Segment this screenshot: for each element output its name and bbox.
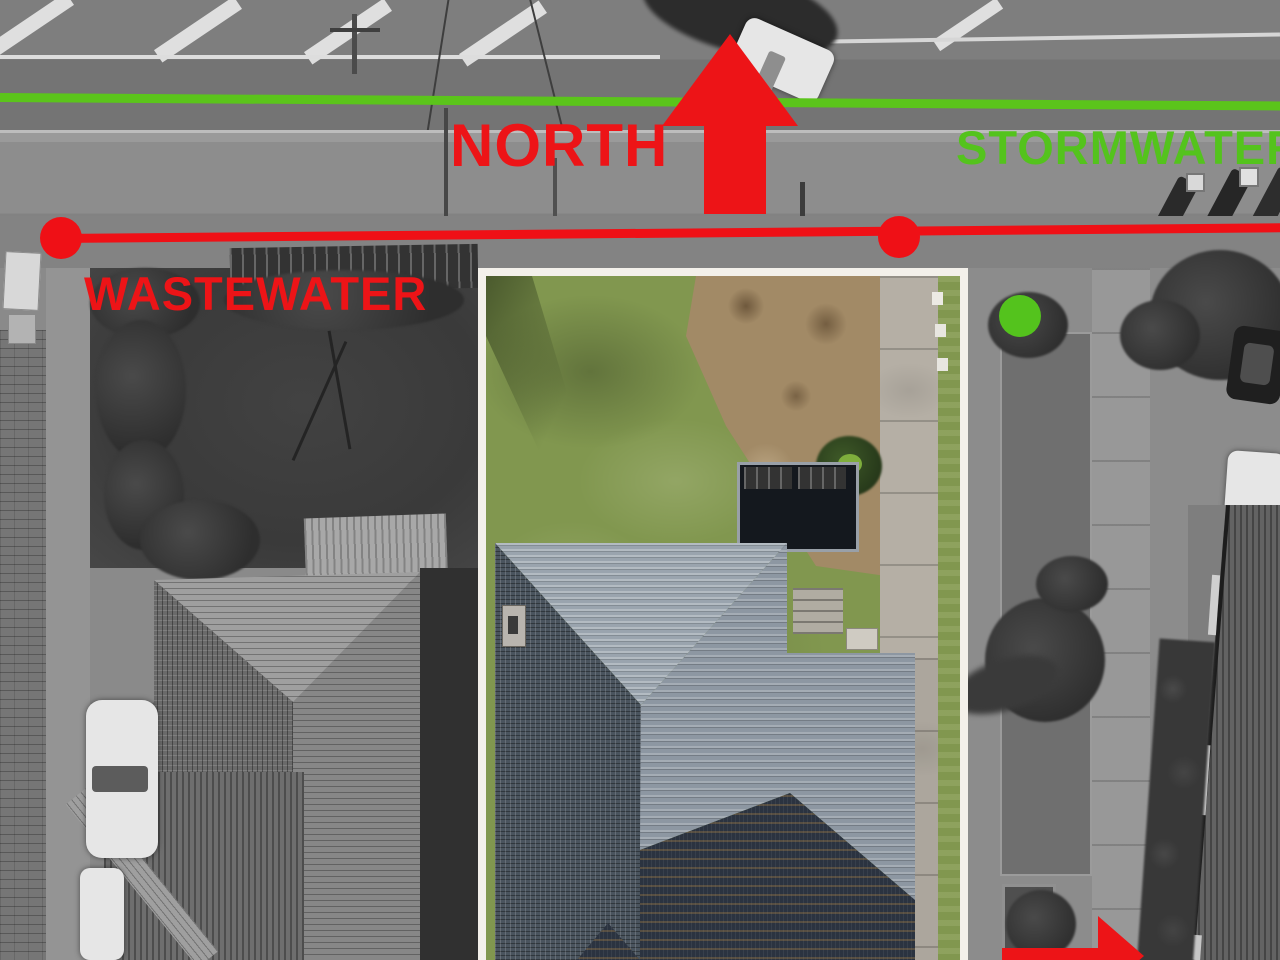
wastewater-connection-dot-left	[40, 217, 82, 259]
aerial-site-map: NORTH STORMWATER WASTEWATER	[0, 0, 1280, 960]
highlighted-property-lot	[478, 268, 968, 960]
wastewater-label: WASTEWATER	[84, 270, 427, 317]
shrub	[1036, 556, 1108, 612]
lawn-strip-right	[938, 276, 960, 960]
street-sign-board	[3, 251, 42, 311]
hedge-bush	[96, 320, 186, 460]
street-sign-board	[8, 314, 36, 344]
trellis-slats	[744, 467, 792, 489]
car-roof-highlight	[1239, 342, 1274, 386]
wastewater-connection-dot-right	[878, 216, 920, 258]
chimney	[502, 605, 526, 647]
path-strip	[1092, 268, 1150, 960]
white-vehicle	[80, 868, 124, 960]
bin-top	[1186, 173, 1205, 192]
secondary-arrow-icon	[1002, 916, 1192, 960]
boundary-post	[935, 324, 946, 337]
secondary-arrow-shaft	[1002, 948, 1098, 960]
power-pole	[352, 14, 357, 74]
trellis-slats	[798, 467, 846, 489]
lamp-post	[444, 108, 448, 216]
main-house-roof	[495, 543, 915, 960]
north-label: NORTH	[450, 116, 668, 176]
verge	[0, 216, 1280, 268]
boundary-post	[937, 358, 948, 371]
boundary-wall-left	[0, 330, 46, 960]
north-arrow-head	[662, 34, 798, 126]
north-arrow-icon	[662, 34, 798, 218]
lawn-shadow	[486, 276, 606, 466]
chimney-flue	[508, 616, 518, 634]
secondary-arrow-head	[1098, 916, 1144, 960]
north-arrow-shaft	[704, 118, 766, 214]
boundary-post	[932, 292, 943, 305]
van-windshield	[92, 766, 148, 792]
hedge-bush	[140, 500, 260, 580]
tree-canopy	[1120, 300, 1200, 370]
shadow-gap	[420, 568, 478, 960]
trellis-structure	[737, 462, 859, 552]
driveway-left	[46, 268, 90, 960]
marker-post	[800, 182, 805, 216]
power-pole-crossarm	[330, 28, 380, 32]
road-lane-line	[0, 55, 660, 59]
stormwater-connection-dot	[999, 295, 1041, 337]
stormwater-label: STORMWATER	[956, 124, 1280, 171]
